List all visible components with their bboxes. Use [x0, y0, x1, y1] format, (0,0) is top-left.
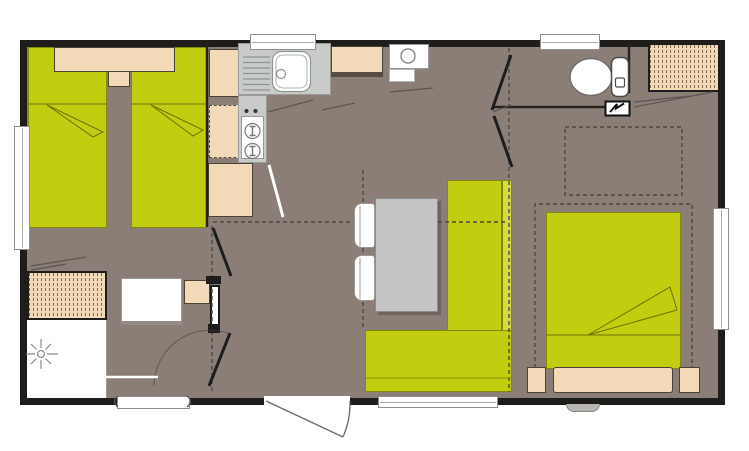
- bedroom-door-left: [213, 228, 231, 276]
- entry-door: [266, 401, 350, 437]
- fuse-box: [606, 102, 630, 116]
- sink-with-drainer: [243, 52, 311, 92]
- toilet: [570, 58, 629, 97]
- water-heater-dial: [401, 49, 415, 63]
- plan-linework: [0, 0, 749, 451]
- dashed-partitions: [212, 48, 692, 392]
- floorplan: [0, 0, 749, 451]
- shower-head-icon: [26, 339, 58, 369]
- wardrobe-rail-marks: [31, 92, 713, 270]
- kitchen-door-leaf: [269, 165, 283, 217]
- louvre-window-arcs: [115, 396, 191, 407]
- bed-fold-marks: [29, 104, 680, 335]
- hob-burners: [245, 109, 261, 159]
- washroom-door: [154, 330, 230, 386]
